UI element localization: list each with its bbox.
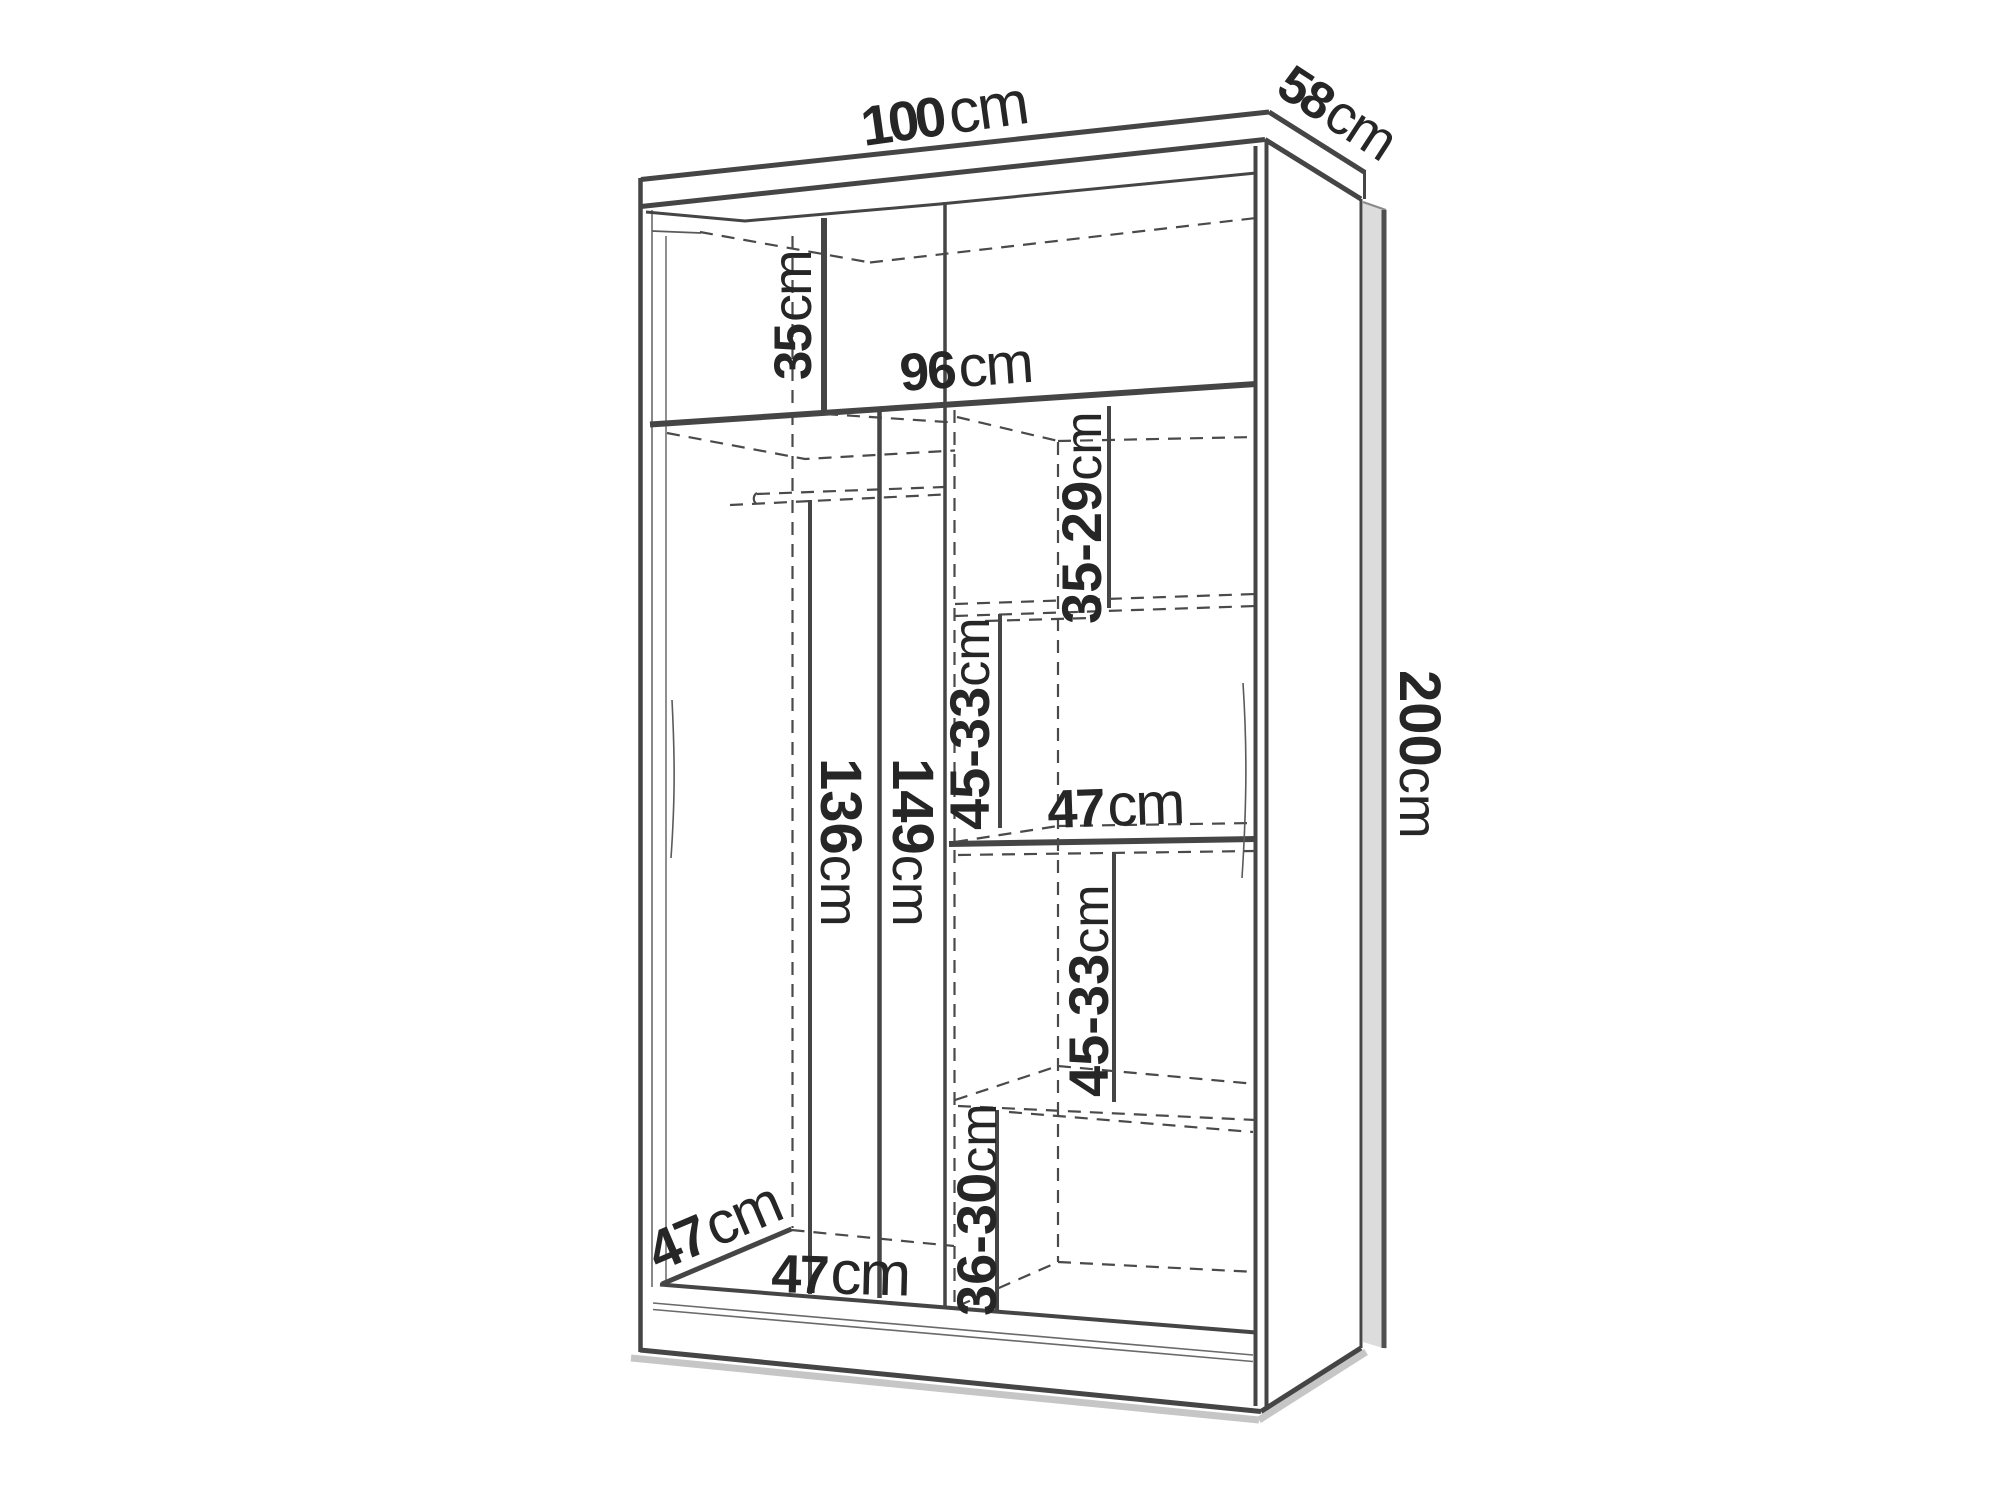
svg-text:35-29cm: 35-29cm	[1050, 411, 1113, 624]
svg-text:136cm: 136cm	[808, 758, 873, 927]
svg-text:35cm: 35cm	[760, 251, 823, 380]
svg-text:200cm: 200cm	[1387, 670, 1452, 839]
svg-text:36-30cm: 36-30cm	[945, 1103, 1008, 1316]
svg-text:149cm: 149cm	[880, 758, 945, 927]
svg-text:47cm: 47cm	[771, 1237, 910, 1310]
svg-text:45-33cm: 45-33cm	[938, 617, 1001, 830]
svg-text:45-33cm: 45-33cm	[1057, 884, 1120, 1097]
svg-text:47cm: 47cm	[1046, 769, 1184, 841]
